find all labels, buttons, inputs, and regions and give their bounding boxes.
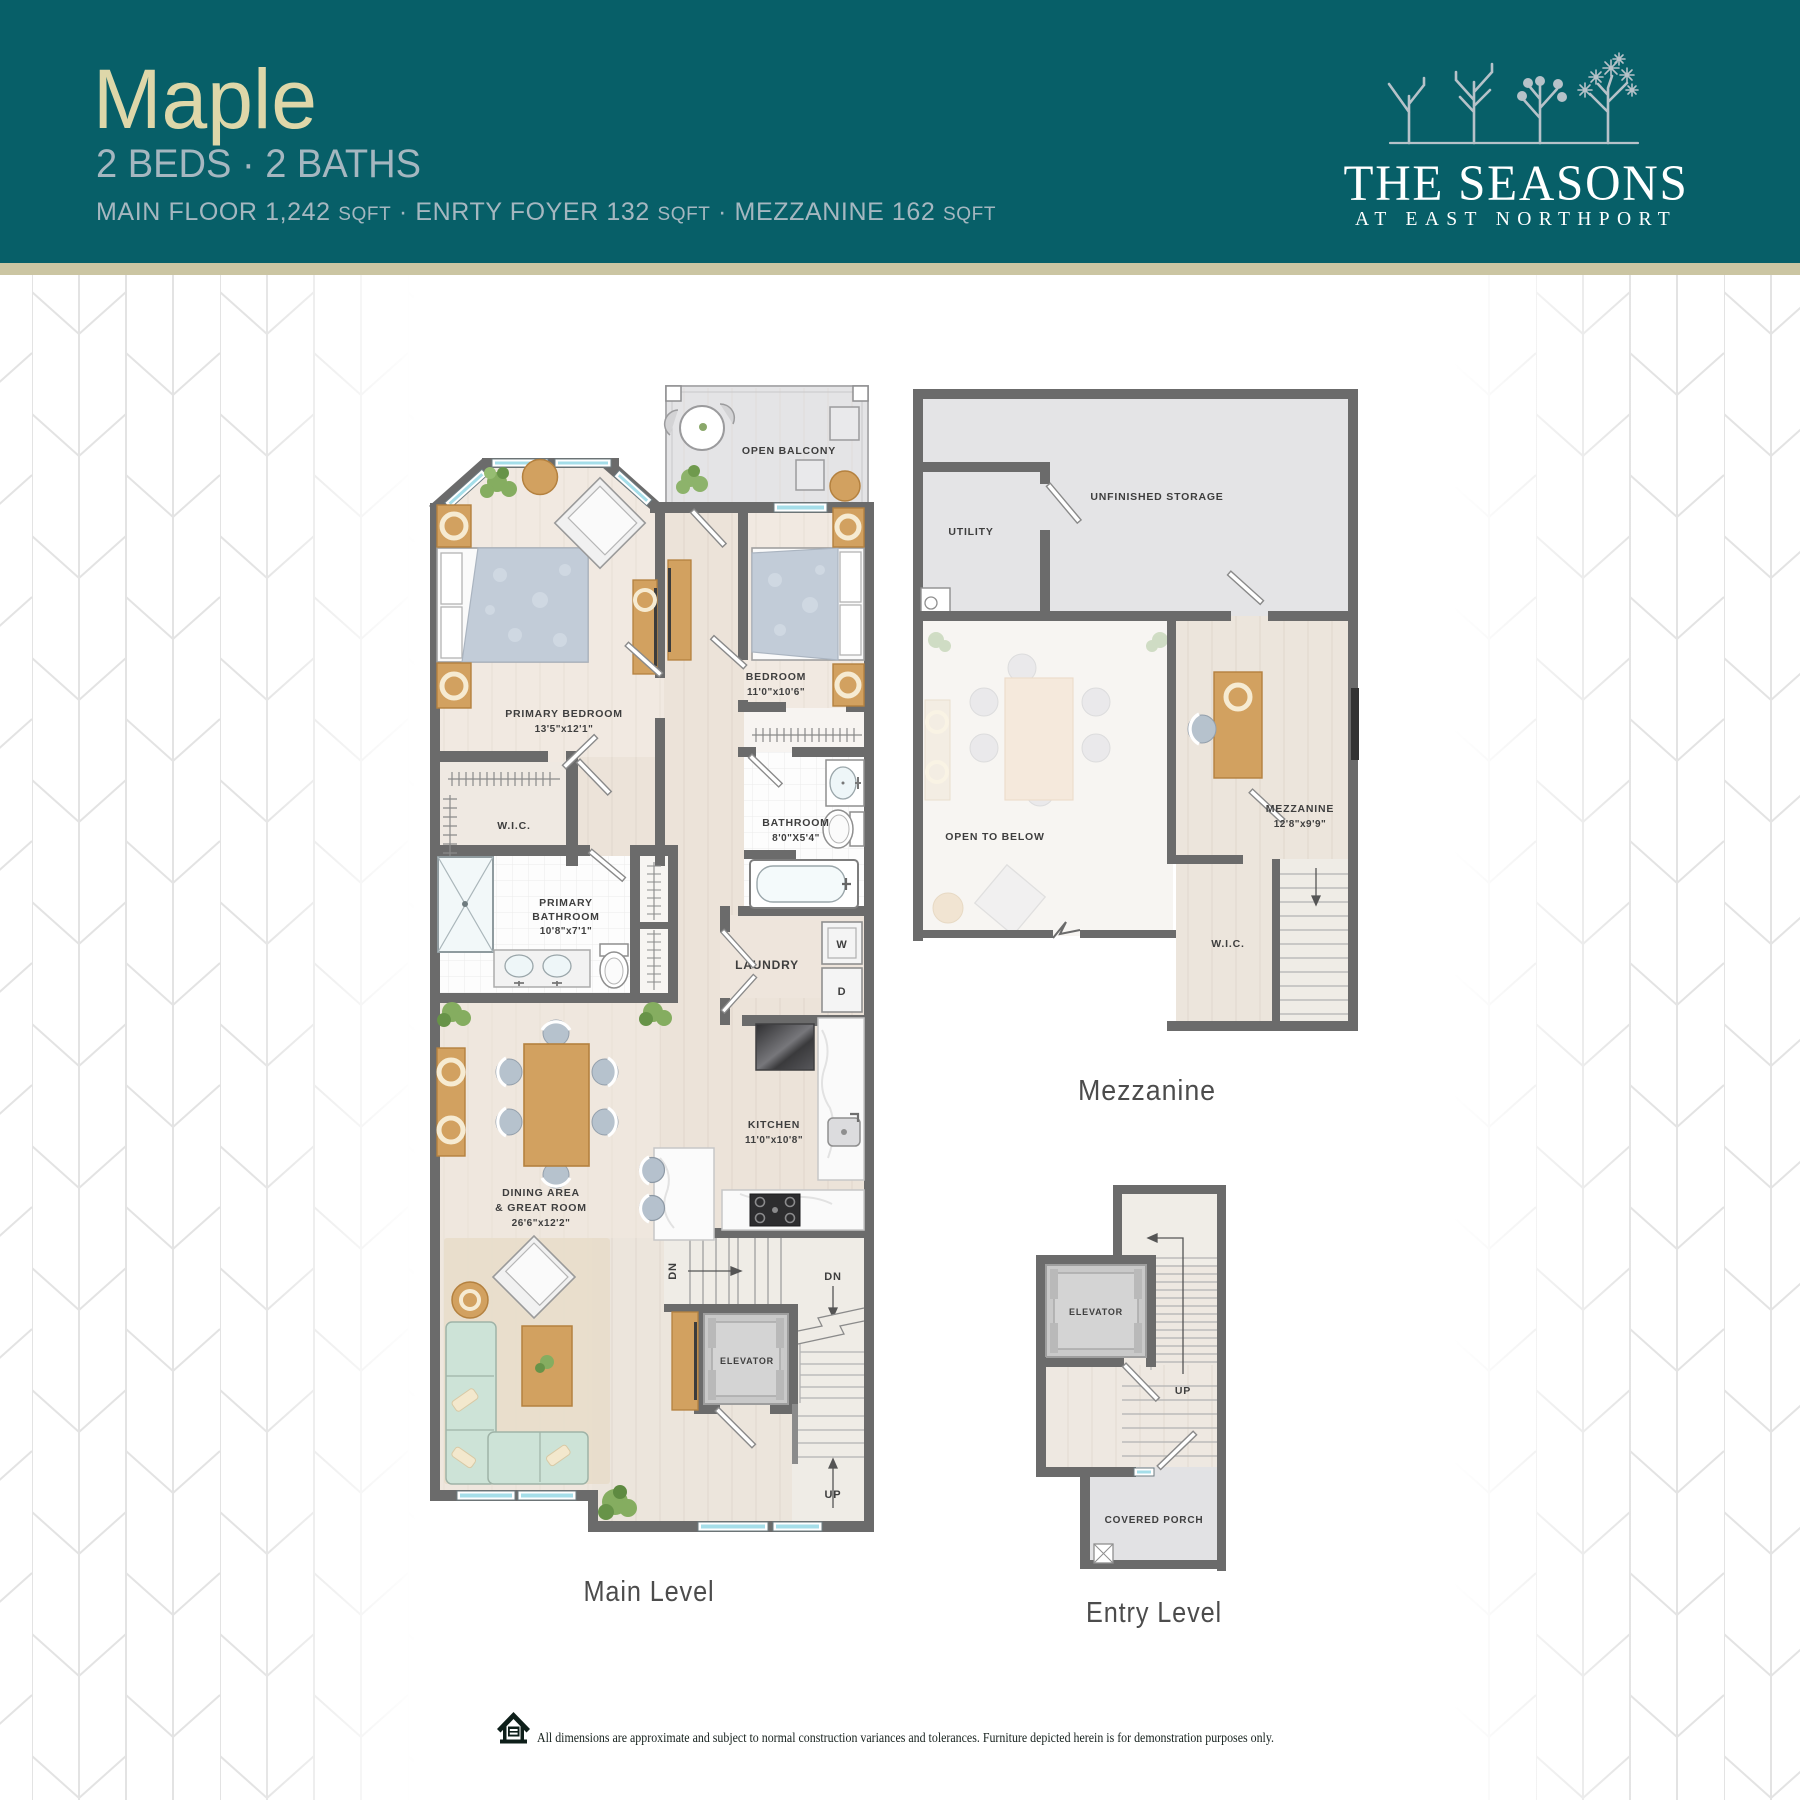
svg-text:W.I.C.: W.I.C. [497, 820, 530, 832]
svg-text:W.I.C.: W.I.C. [1211, 938, 1244, 950]
svg-text:DN: DN [824, 1271, 842, 1283]
svg-text:DN: DN [667, 1262, 679, 1280]
svg-text:OPEN TO BELOW: OPEN TO BELOW [945, 831, 1044, 843]
svg-text:PRIMARY BEDROOM: PRIMARY BEDROOM [505, 708, 623, 720]
svg-text:13'5"x12'1": 13'5"x12'1" [535, 724, 594, 735]
svg-text:KITCHEN: KITCHEN [748, 1119, 800, 1131]
svg-text:2 BEDS · 2 BATHS: 2 BEDS · 2 BATHS [96, 142, 421, 186]
svg-text:UP: UP [825, 1489, 842, 1501]
svg-text:BATHROOM: BATHROOM [532, 911, 599, 923]
svg-text:ELEVATOR: ELEVATOR [720, 1356, 774, 1366]
svg-text:D: D [838, 986, 847, 998]
svg-text:BATHROOM: BATHROOM [762, 817, 829, 829]
svg-text:PRIMARY: PRIMARY [539, 897, 593, 909]
svg-text:MAIN FLOOR 1,242 SQFT · ENRTY: MAIN FLOOR 1,242 SQFT · ENRTY FOYER 132 … [96, 198, 996, 226]
svg-text:DINING AREA: DINING AREA [502, 1187, 580, 1199]
svg-text:11'0"x10'8": 11'0"x10'8" [745, 1135, 803, 1146]
svg-text:W: W [836, 939, 847, 951]
svg-text:THE SEASONS: THE SEASONS [1344, 156, 1689, 212]
svg-text:ELEVATOR: ELEVATOR [1069, 1307, 1123, 1317]
svg-text:Main Level: Main Level [584, 1576, 715, 1608]
svg-text:12'8"x9'9": 12'8"x9'9" [1274, 819, 1327, 830]
svg-text:& GREAT ROOM: & GREAT ROOM [495, 1202, 587, 1214]
svg-text:Maple: Maple [93, 52, 317, 146]
svg-text:OPEN BALCONY: OPEN BALCONY [742, 445, 836, 457]
svg-text:AT EAST NORTHPORT: AT EAST NORTHPORT [1355, 208, 1677, 230]
svg-text:Mezzanine: Mezzanine [1078, 1075, 1216, 1107]
svg-text:UNFINISHED STORAGE: UNFINISHED STORAGE [1090, 491, 1223, 503]
svg-text:MEZZANINE: MEZZANINE [1266, 803, 1334, 815]
svg-text:10'8"x7'1": 10'8"x7'1" [540, 926, 593, 937]
svg-text:BEDROOM: BEDROOM [746, 671, 806, 683]
svg-text:All dimensions are approximate: All dimensions are approximate and subje… [537, 1730, 1274, 1745]
svg-text:11'0"x10'6": 11'0"x10'6" [747, 687, 805, 698]
svg-text:LAUNDRY: LAUNDRY [735, 958, 799, 972]
svg-text:UTILITY: UTILITY [948, 526, 993, 538]
svg-text:Entry Level: Entry Level [1086, 1597, 1222, 1629]
svg-text:COVERED PORCH: COVERED PORCH [1105, 1515, 1204, 1526]
svg-text:UP: UP [1175, 1385, 1191, 1397]
svg-text:8'0"X5'4": 8'0"X5'4" [772, 833, 820, 844]
svg-text:26'6"x12'2": 26'6"x12'2" [512, 1218, 571, 1229]
